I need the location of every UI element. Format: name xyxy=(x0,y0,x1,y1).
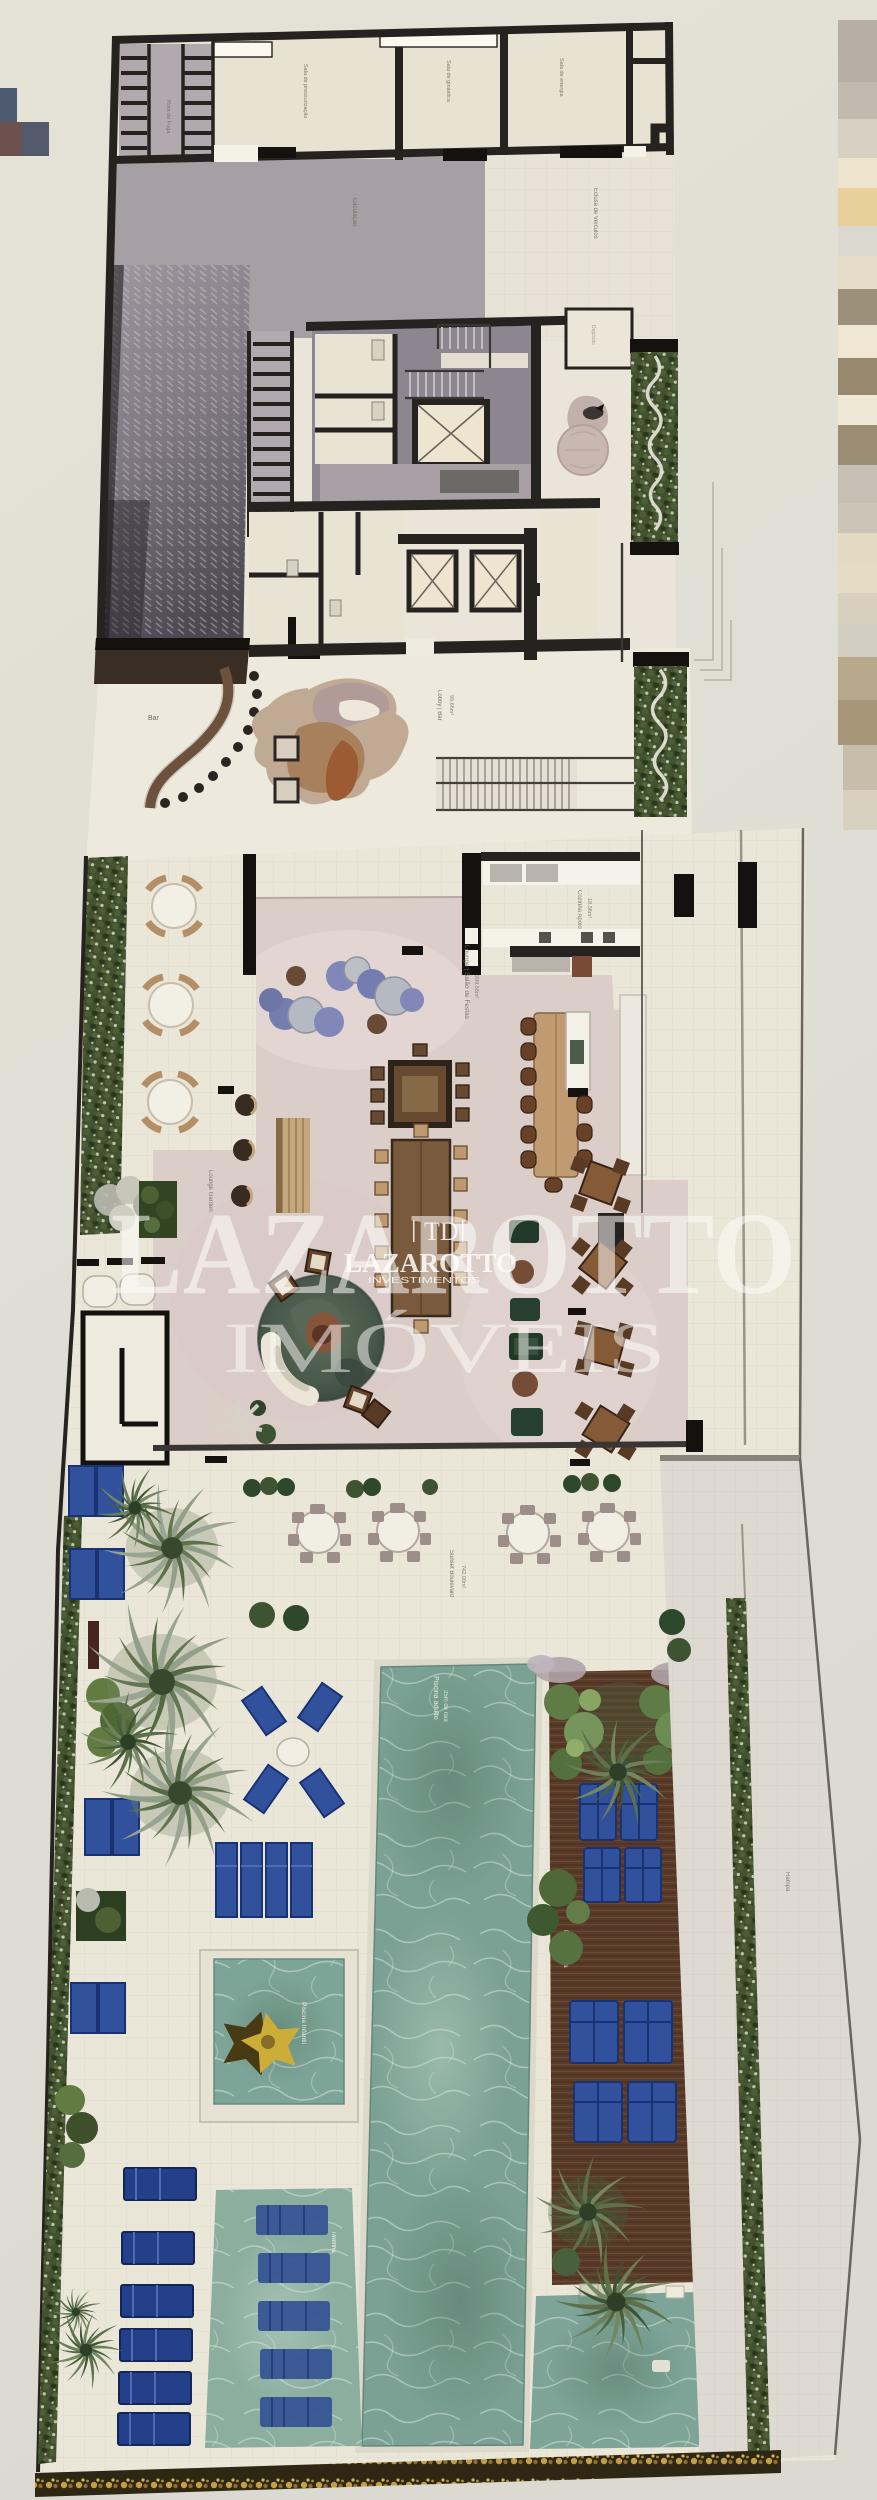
svg-text:INVESTIMENTOS: INVESTIMENTOS xyxy=(368,1276,480,1285)
svg-text:Piscina Infantil: Piscina Infantil xyxy=(300,2002,307,2044)
svg-text:IMÓVEIS: IMÓVEIS xyxy=(223,1308,666,1388)
svg-text:Sala de pressurização: Sala de pressurização xyxy=(302,64,308,118)
svg-text:TD: TD xyxy=(424,1217,459,1246)
svg-text:LAZAROTTO: LAZAROTTO xyxy=(344,1248,517,1278)
svg-text:Sala de energia: Sala de energia xyxy=(558,58,564,97)
svg-text:209,58m²: 209,58m² xyxy=(473,975,479,998)
svg-text:Cozinha Apoio: Cozinha Apoio xyxy=(576,890,582,929)
svg-text:Bar: Bar xyxy=(148,715,160,722)
svg-text:Circulação: Circulação xyxy=(351,198,357,227)
svg-text:Lounge | Salão de Festas: Lounge | Salão de Festas xyxy=(463,945,470,1020)
svg-text:Prainha: Prainha xyxy=(330,2232,336,2253)
svg-text:Lobby | Bar: Lobby | Bar xyxy=(436,690,442,721)
svg-text:742,00m²: 742,00m² xyxy=(460,1565,466,1588)
svg-text:Sunset Boulevard: Sunset Boulevard xyxy=(448,1550,454,1597)
svg-text:25m de raia: 25m de raia xyxy=(442,1690,448,1722)
svg-text:Rampa: Rampa xyxy=(784,1872,790,1892)
svg-text:Piscina adulto: Piscina adulto xyxy=(432,1676,439,1720)
svg-text:Sala de ginástica: Sala de ginástica xyxy=(445,60,451,103)
svg-text:Eclusa de Veículos: Eclusa de Veículos xyxy=(592,188,598,239)
svg-text:18,36m²: 18,36m² xyxy=(586,898,592,918)
svg-text:Rota de Fuga: Rota de Fuga xyxy=(165,100,171,134)
svg-text:99,66m²: 99,66m² xyxy=(448,695,454,715)
svg-text:Depósito: Depósito xyxy=(590,325,596,345)
